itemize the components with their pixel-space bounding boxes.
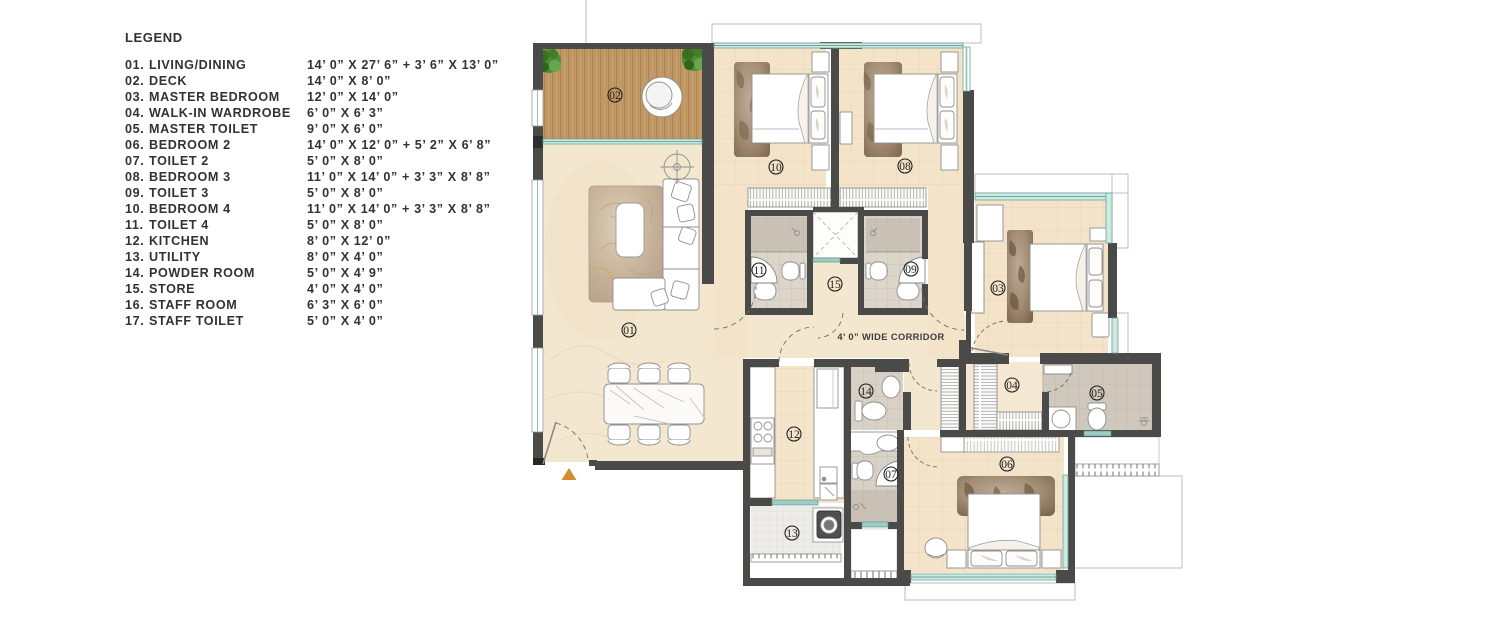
svg-text:6’ 3” X 6’ 0”: 6’ 3” X 6’ 0” <box>307 298 383 312</box>
svg-text:12’ 0” X 14’ 0”: 12’ 0” X 14’ 0” <box>307 90 399 104</box>
svg-text:TOILET 2: TOILET 2 <box>149 154 209 168</box>
svg-text:LIVING/DINING: LIVING/DINING <box>149 58 246 72</box>
svg-text:04.: 04. <box>125 106 144 120</box>
svg-text:5’ 0” X 4’ 9”: 5’ 0” X 4’ 9” <box>307 266 383 280</box>
svg-text:14’ 0” X 8’ 0”: 14’ 0” X 8’ 0” <box>307 74 391 88</box>
svg-text:BEDROOM 3: BEDROOM 3 <box>149 170 231 184</box>
svg-text:UTILITY: UTILITY <box>149 250 201 264</box>
svg-text:4’ 0” X 4’ 0”: 4’ 0” X 4’ 0” <box>307 282 383 296</box>
svg-text:11’ 0” X 14’ 0” + 3’ 3” X 8’ 8: 11’ 0” X 14’ 0” + 3’ 3” X 8’ 8” <box>307 170 491 184</box>
svg-text:WALK-IN WARDROBE: WALK-IN WARDROBE <box>149 106 291 120</box>
svg-text:BEDROOM 2: BEDROOM 2 <box>149 138 231 152</box>
svg-text:9’ 0” X 6’ 0”: 9’ 0” X 6’ 0” <box>307 122 383 136</box>
svg-text:BEDROOM 4: BEDROOM 4 <box>149 202 231 216</box>
svg-text:14.: 14. <box>125 266 144 280</box>
svg-text:07.: 07. <box>125 154 144 168</box>
svg-text:LEGEND: LEGEND <box>125 30 183 45</box>
svg-text:16.: 16. <box>125 298 144 312</box>
svg-text:08.: 08. <box>125 170 144 184</box>
svg-text:MASTER TOILET: MASTER TOILET <box>149 122 258 136</box>
svg-text:17.: 17. <box>125 314 144 328</box>
svg-text:DECK: DECK <box>149 74 187 88</box>
svg-text:11’ 0” X 14’ 0” + 3’ 3” X 8’ 8: 11’ 0” X 14’ 0” + 3’ 3” X 8’ 8” <box>307 202 491 216</box>
svg-text:13.: 13. <box>125 250 144 264</box>
svg-text:5’ 0” X 8’ 0”: 5’ 0” X 8’ 0” <box>307 218 383 232</box>
svg-text:8’ 0” X 4’ 0”: 8’ 0” X 4’ 0” <box>307 250 383 264</box>
svg-text:01.: 01. <box>125 58 144 72</box>
svg-text:12.: 12. <box>125 234 144 248</box>
svg-text:06.: 06. <box>125 138 144 152</box>
svg-text:5’ 0” X 4’ 0”: 5’ 0” X 4’ 0” <box>307 314 383 328</box>
svg-text:MASTER BEDROOM: MASTER BEDROOM <box>149 90 280 104</box>
svg-text:5’ 0” X 8’ 0”: 5’ 0” X 8’ 0” <box>307 186 383 200</box>
svg-text:10.: 10. <box>125 202 144 216</box>
svg-text:14’ 0” X 12’ 0” + 5’ 2” X 6’ 8: 14’ 0” X 12’ 0” + 5’ 2” X 6’ 8” <box>307 138 491 152</box>
svg-text:03.: 03. <box>125 90 144 104</box>
svg-text:09.: 09. <box>125 186 144 200</box>
svg-text:STAFF TOILET: STAFF TOILET <box>149 314 244 328</box>
svg-text:STORE: STORE <box>149 282 195 296</box>
svg-text:KITCHEN: KITCHEN <box>149 234 209 248</box>
svg-text:11.: 11. <box>125 218 144 232</box>
svg-text:6’ 0” X 6’ 3”: 6’ 0” X 6’ 3” <box>307 106 383 120</box>
svg-text:02.: 02. <box>125 74 144 88</box>
svg-text:STAFF ROOM: STAFF ROOM <box>149 298 237 312</box>
svg-text:05.: 05. <box>125 122 144 136</box>
svg-text:TOILET 4: TOILET 4 <box>149 218 209 232</box>
svg-text:5’ 0” X 8’ 0”: 5’ 0” X 8’ 0” <box>307 154 383 168</box>
svg-text:POWDER ROOM: POWDER ROOM <box>149 266 255 280</box>
svg-text:8’ 0” X 12’ 0”: 8’ 0” X 12’ 0” <box>307 234 391 248</box>
svg-text:TOILET 3: TOILET 3 <box>149 186 209 200</box>
svg-text:15.: 15. <box>125 282 144 296</box>
svg-text:14’ 0” X 27’ 6” + 3’ 6” X 13’: 14’ 0” X 27’ 6” + 3’ 6” X 13’ 0” <box>307 58 499 72</box>
